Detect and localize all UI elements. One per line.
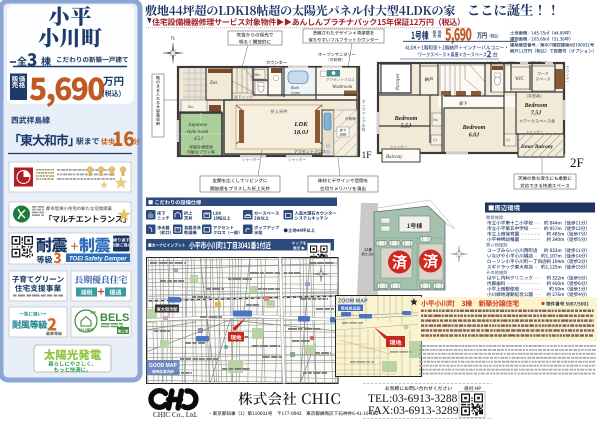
svg-text:Bedroom: Bedroom bbox=[394, 116, 418, 122]
svg-text:Bedroom: Bedroom bbox=[524, 103, 548, 109]
svg-text:Bedroom: Bedroom bbox=[462, 125, 486, 131]
svg-text:Japanese: Japanese bbox=[188, 122, 208, 128]
svg-text:WIC: WIC bbox=[515, 77, 525, 82]
svg-text:Washroom: Washroom bbox=[332, 85, 353, 90]
svg-text:Ent.: Ent. bbox=[209, 81, 218, 86]
svg-text:CHIC Co., Ltd.: CHIC Co., Ltd. bbox=[153, 411, 198, 419]
svg-text:GOOD MAP: GOOD MAP bbox=[149, 363, 177, 369]
svg-text:CL: CL bbox=[433, 138, 438, 142]
svg-text:18.0J: 18.0J bbox=[294, 129, 310, 136]
svg-text:Parapet: Parapet bbox=[396, 73, 401, 91]
svg-text:Inner Balcony: Inner Balcony bbox=[520, 144, 554, 150]
svg-text:FAX:03-6913-3289: FAX:03-6913-3289 bbox=[368, 405, 459, 417]
svg-text:Sto: Sto bbox=[433, 118, 438, 122]
svg-text:Balcony: Balcony bbox=[386, 155, 403, 160]
svg-text:2F: 2F bbox=[570, 155, 584, 170]
svg-text:BELS: BELS bbox=[100, 312, 129, 324]
svg-text:room: room bbox=[291, 90, 300, 95]
svg-text:CL: CL bbox=[506, 138, 511, 142]
svg-text:TOEI Safety Damper: TOEI Safety Damper bbox=[69, 256, 127, 262]
svg-text:7.5J: 7.5J bbox=[531, 111, 543, 117]
svg-text:LDK: LDK bbox=[293, 121, 308, 128]
svg-text:TEL:03-6913-3288: TEL:03-6913-3288 bbox=[368, 393, 458, 405]
svg-text:Sto.: Sto. bbox=[188, 104, 194, 109]
svg-text:1F: 1F bbox=[362, 151, 372, 161]
svg-text:6.0J: 6.0J bbox=[469, 133, 481, 139]
svg-text:4.5J: 4.5J bbox=[194, 135, 203, 142]
svg-text:ZOOM MAP: ZOOM MAP bbox=[338, 299, 368, 305]
svg-text:N: N bbox=[171, 36, 175, 42]
svg-text:-style room: -style room bbox=[185, 129, 209, 135]
svg-text:Sho.: Sho. bbox=[255, 73, 262, 77]
